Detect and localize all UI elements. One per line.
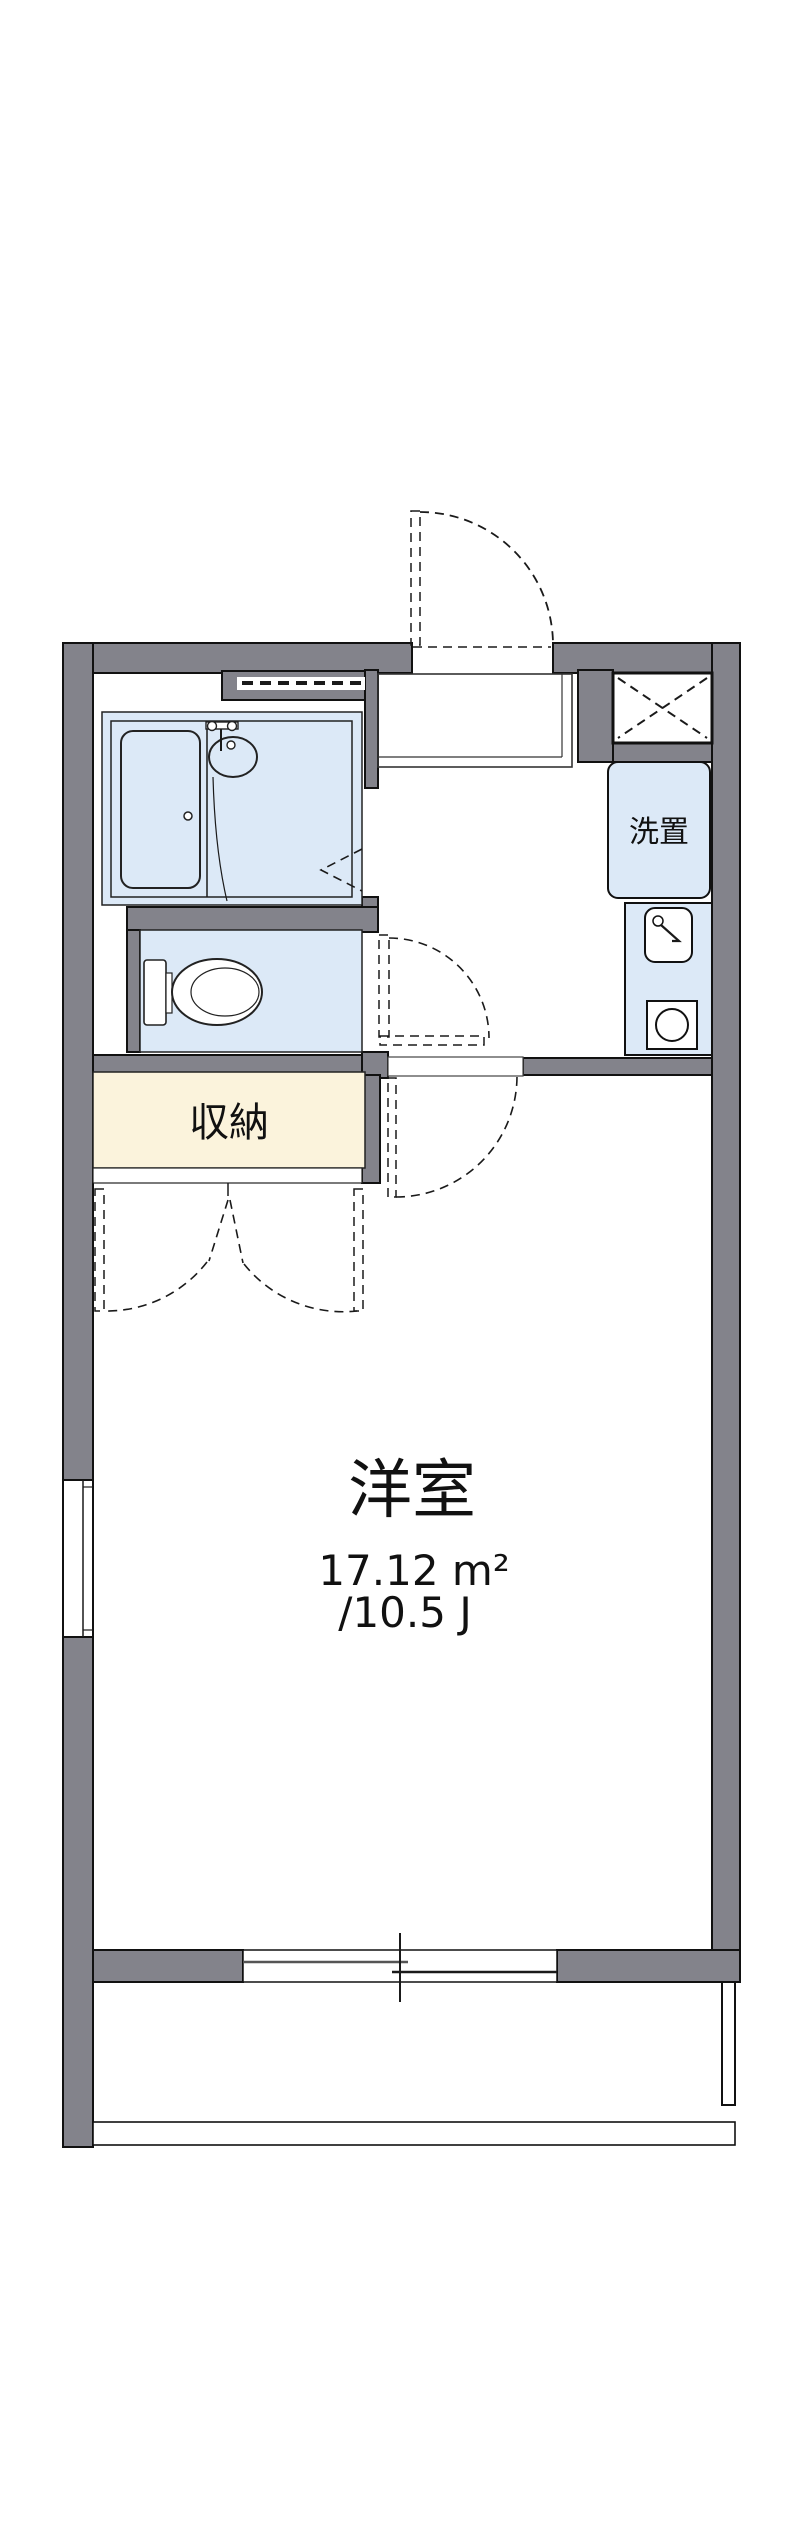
bathroom-window [237, 677, 365, 690]
storage-door-arc-left [104, 1262, 207, 1311]
bathroom-faucet-handle-right-icon [228, 722, 237, 731]
storage-door-track [93, 1168, 362, 1183]
storage-closet: 収納 [93, 1072, 365, 1312]
main-room-door-swing-arc [396, 1076, 517, 1197]
balcony-side-partition [722, 1982, 735, 2105]
wall-bottom-left [93, 1950, 243, 1982]
pipe-shaft [613, 673, 712, 743]
balcony-railing [93, 2122, 735, 2145]
bathroom-sink-drain-icon [227, 741, 235, 749]
toilet-room [140, 930, 489, 1052]
entrance [378, 511, 572, 767]
toilet-tank [144, 960, 166, 1025]
main-room-door-threshold [388, 1057, 523, 1076]
wall-bottom-right [557, 1950, 740, 1982]
storage-door-leaf-left [209, 1200, 228, 1261]
genkan-step [378, 674, 572, 767]
balcony-sliding-door [243, 1933, 557, 2002]
left-window-opening [63, 1480, 93, 1637]
wall-genkan-left [365, 670, 378, 788]
floor-plan: 洗置 [0, 0, 800, 2541]
storage-door-leaf-right [230, 1200, 243, 1263]
storage-door-arc-right [244, 1264, 357, 1312]
storage-door-panel-left [95, 1189, 104, 1311]
balcony [93, 1982, 735, 2145]
wall-left-lower [63, 1637, 93, 2147]
storage-label: 収納 [189, 1100, 269, 1146]
bathroom-faucet-handle-left-icon [208, 722, 217, 731]
kitchen-burner-icon [656, 1009, 688, 1041]
wall-genkan-right-pier [578, 670, 613, 762]
kitchen-sink [645, 908, 692, 962]
toilet-door-panel-closed [380, 1036, 484, 1045]
washer-space: 洗置 [608, 762, 710, 898]
bathroom [102, 712, 362, 905]
wall-mainroom-divider [523, 1058, 712, 1075]
genkan-floor [378, 674, 572, 767]
washer-label: 洗置 [629, 815, 689, 850]
kitchen [625, 903, 712, 1055]
entrance-door-panel [411, 511, 420, 645]
entrance-door-swing-arc [420, 512, 553, 645]
bathtub-drain-icon [184, 812, 192, 820]
toilet-door-swing-arc [389, 938, 489, 1038]
storage-door-panel-right [354, 1189, 363, 1311]
toilet-door-panel-open [379, 935, 389, 1037]
floorplan-page: 洗置 [0, 0, 800, 2541]
wall-toilet-top [127, 907, 378, 932]
main-room-name: 洋室 [348, 1454, 476, 1528]
main-room-door [388, 1057, 523, 1197]
wall-left-upper [63, 643, 93, 1480]
wall-toilet-left [127, 930, 140, 1052]
left-window [63, 1480, 93, 1637]
wall-under-ps [613, 743, 712, 762]
main-room: 洋室 17.12 m² /10.5 J [318, 1454, 509, 1637]
wall-right [712, 643, 740, 1982]
main-room-area-tatami: /10.5 J [338, 1588, 471, 1637]
main-room-door-panel [388, 1078, 396, 1197]
wall-top-left [63, 643, 412, 673]
